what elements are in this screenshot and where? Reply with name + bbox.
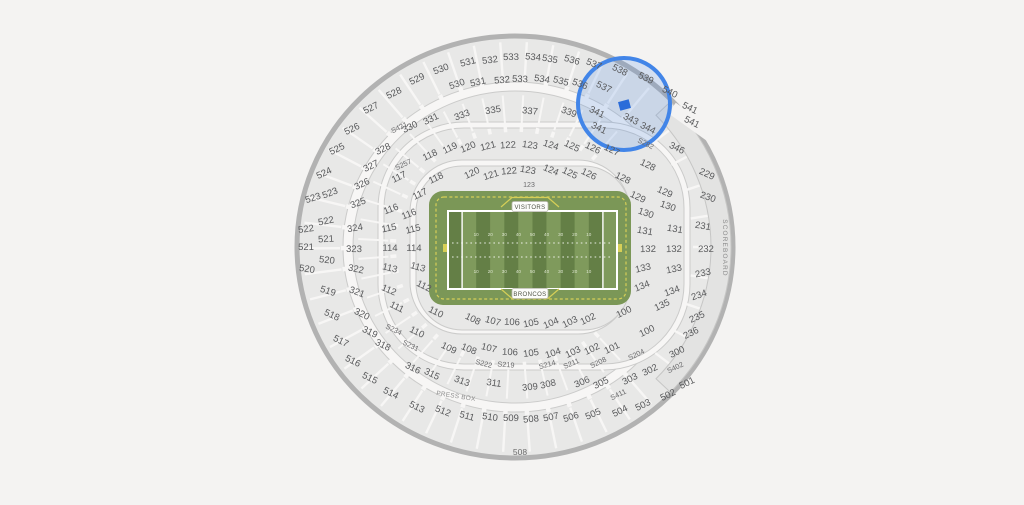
yard-number: 20 bbox=[488, 269, 494, 274]
section-532[interactable]: 532 bbox=[481, 54, 498, 67]
section-508[interactable]: 508 bbox=[523, 413, 540, 425]
football-field: 101020203030404050504040303020201010 VIS… bbox=[429, 191, 631, 305]
yard-number: 50 bbox=[530, 269, 536, 274]
field-turf bbox=[448, 211, 617, 289]
seat-map-stage: 101020203030404050504040303020201010 VIS… bbox=[0, 0, 1024, 500]
section-323[interactable]: 323 bbox=[346, 244, 362, 255]
section-123[interactable]: 123 bbox=[521, 139, 538, 152]
yard-number: 30 bbox=[502, 269, 508, 274]
yard-number: 10 bbox=[586, 232, 592, 237]
yard-number: 10 bbox=[474, 232, 480, 237]
section-521[interactable]: 521 bbox=[318, 233, 335, 245]
yard-number: 40 bbox=[544, 269, 550, 274]
section-132[interactable]: 132 bbox=[666, 244, 682, 255]
section-122[interactable]: 122 bbox=[501, 165, 518, 177]
visitors-label: VISITORS bbox=[514, 205, 545, 211]
rim-notch-bottom bbox=[700, 366, 742, 390]
yard-number: 20 bbox=[488, 232, 494, 237]
section-309[interactable]: 309 bbox=[522, 381, 539, 394]
yard-number: 20 bbox=[572, 269, 578, 274]
yard-number: 30 bbox=[558, 232, 564, 237]
yard-number: 40 bbox=[516, 269, 522, 274]
yard-number: 40 bbox=[544, 232, 550, 237]
section-132[interactable]: 132 bbox=[640, 244, 656, 255]
suite-S219[interactable]: S219 bbox=[497, 359, 515, 369]
section-521[interactable]: 521 bbox=[298, 242, 314, 253]
section-105[interactable]: 105 bbox=[522, 347, 539, 360]
yard-number: 30 bbox=[502, 232, 508, 237]
sideline-marker-left bbox=[443, 244, 447, 252]
yard-number: 50 bbox=[530, 232, 536, 237]
yard-number: 30 bbox=[558, 269, 564, 274]
yard-number: 20 bbox=[572, 232, 578, 237]
bottom-gate-label: 508 bbox=[513, 447, 527, 457]
section-532[interactable]: 532 bbox=[494, 74, 511, 86]
tunnel-label-123: 123 bbox=[523, 182, 535, 189]
section-533[interactable]: 533 bbox=[503, 52, 519, 63]
section-509[interactable]: 509 bbox=[503, 413, 519, 424]
section-114[interactable]: 114 bbox=[406, 243, 421, 254]
section-114[interactable]: 114 bbox=[382, 243, 397, 254]
section-232[interactable]: 232 bbox=[698, 244, 714, 255]
section-510[interactable]: 510 bbox=[481, 411, 498, 424]
section-533[interactable]: 533 bbox=[512, 74, 528, 85]
section-106[interactable]: 106 bbox=[504, 317, 520, 329]
yard-number: 10 bbox=[474, 269, 480, 274]
section-122[interactable]: 122 bbox=[500, 139, 517, 151]
yard-number: 10 bbox=[586, 269, 592, 274]
section-311[interactable]: 311 bbox=[486, 377, 503, 390]
stadium-seating-map: 101020203030404050504040303020201010 VIS… bbox=[0, 0, 1024, 500]
yard-number: 40 bbox=[516, 232, 522, 237]
section-522[interactable]: 522 bbox=[297, 223, 314, 236]
section-534[interactable]: 534 bbox=[525, 51, 542, 63]
section-106[interactable]: 106 bbox=[502, 347, 518, 359]
scoreboard-label: SCOREBOARD bbox=[721, 219, 728, 276]
section-337[interactable]: 337 bbox=[521, 105, 538, 118]
sideline-marker-right bbox=[618, 244, 622, 252]
broncos-badge: BRONCOS bbox=[501, 289, 559, 299]
broncos-label: BRONCOS bbox=[513, 292, 546, 298]
section-520[interactable]: 520 bbox=[318, 254, 335, 267]
